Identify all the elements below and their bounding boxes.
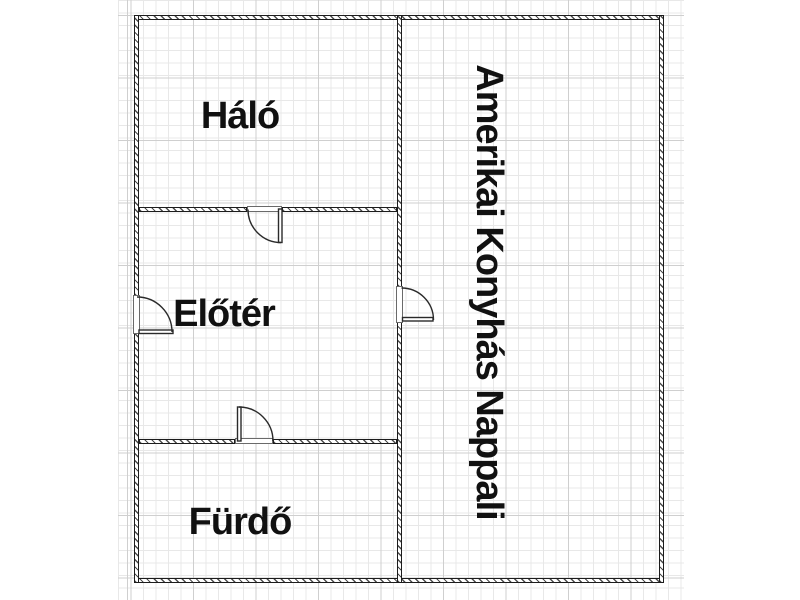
halo-door-icon bbox=[248, 209, 282, 243]
room-label-nappali: Amerikai Konyhás Nappali bbox=[470, 64, 508, 519]
furdo-door-icon bbox=[238, 407, 274, 441]
room-label-halo: Háló bbox=[201, 97, 279, 135]
nappali-door-icon bbox=[402, 288, 434, 321]
room-label-eloter: Előtér bbox=[173, 295, 275, 333]
entrance-door-icon bbox=[137, 297, 173, 334]
door-symbols-layer bbox=[0, 0, 800, 600]
floor-plan-canvas: Háló Előtér Fürdő Amerikai Konyhás Nappa… bbox=[0, 0, 800, 600]
room-label-furdo: Fürdő bbox=[189, 503, 292, 541]
